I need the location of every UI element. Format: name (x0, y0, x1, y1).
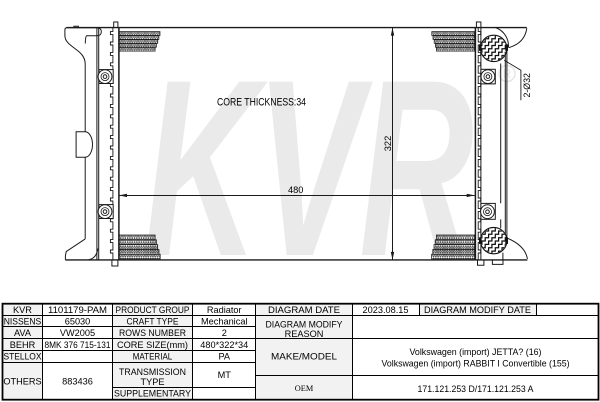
svg-text:REASON: REASON (285, 329, 324, 339)
svg-text:CRAFT TYPE: CRAFT TYPE (127, 316, 179, 326)
svg-text:DIAGRAM MODIFY DATE: DIAGRAM MODIFY DATE (424, 305, 531, 315)
svg-text:NISSENS: NISSENS (4, 316, 42, 326)
svg-text:ROWS NUMBER: ROWS NUMBER (119, 328, 186, 338)
svg-text:KVR: KVR (13, 305, 32, 315)
svg-text:2-Ø32: 2-Ø32 (522, 73, 532, 98)
svg-text:8MK 376 715-131: 8MK 376 715-131 (45, 340, 111, 350)
svg-text:MAKE/MODEL: MAKE/MODEL (271, 352, 337, 362)
svg-text:TRANSMISSION: TRANSMISSION (119, 367, 186, 377)
svg-text:DIAGRAM DATE: DIAGRAM DATE (268, 305, 340, 315)
svg-text:322: 322 (383, 136, 393, 152)
svg-text:Volkswagen (import) JETTA? (16: Volkswagen (import) JETTA? (16) (410, 347, 542, 357)
svg-text:STELLOX: STELLOX (4, 352, 42, 362)
svg-text:KVR: KVR (144, 26, 473, 308)
svg-text:480*322*34: 480*322*34 (200, 340, 248, 350)
svg-text:PA: PA (218, 352, 230, 362)
svg-text:1101179-PAM: 1101179-PAM (48, 305, 107, 315)
svg-text:PRODUCT GROUP: PRODUCT GROUP (116, 305, 190, 315)
svg-text:883436: 883436 (62, 376, 93, 386)
svg-text:Radiator: Radiator (207, 305, 242, 315)
svg-text:CORE THICKNESS:34: CORE THICKNESS:34 (217, 97, 306, 109)
svg-text:OTHERS: OTHERS (3, 376, 41, 386)
svg-text:VW2005: VW2005 (60, 328, 95, 338)
svg-text:480: 480 (288, 185, 304, 195)
svg-text:171.121.253 D/171.121.253 A: 171.121.253 D/171.121.253 A (418, 384, 535, 394)
svg-text:OEM: OEM (295, 384, 314, 393)
svg-text:TYPE: TYPE (141, 377, 165, 387)
svg-text:CORE SIZE(mm): CORE SIZE(mm) (117, 340, 188, 350)
svg-text:Mechanical: Mechanical (201, 316, 247, 326)
svg-text:2: 2 (222, 328, 227, 338)
svg-text:SUPPLEMENTARY: SUPPLEMENTARY (114, 389, 191, 399)
svg-text:MATERIAL: MATERIAL (133, 352, 173, 362)
svg-text:2023.08.15: 2023.08.15 (363, 305, 409, 315)
svg-text:BEHR: BEHR (10, 340, 36, 350)
svg-text:AVA: AVA (14, 328, 32, 338)
svg-text:MT: MT (218, 370, 232, 380)
svg-text:65030: 65030 (65, 316, 91, 326)
svg-text:Volkswagen (import) RABBIT I C: Volkswagen (import) RABBIT I Convertible… (382, 359, 570, 369)
